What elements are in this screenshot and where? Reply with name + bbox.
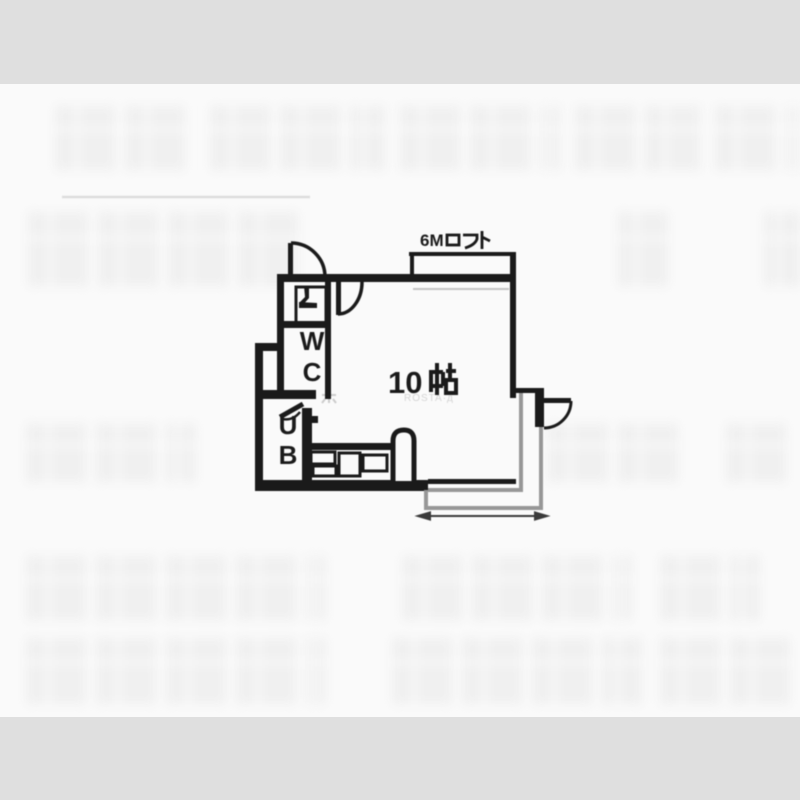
svg-text:C: C [303, 357, 322, 387]
svg-text:U: U [279, 410, 298, 440]
svg-text:6M: 6M [420, 231, 444, 250]
svg-text:10: 10 [388, 365, 422, 400]
svg-text:B: B [279, 440, 298, 470]
svg-text:W: W [300, 326, 325, 356]
